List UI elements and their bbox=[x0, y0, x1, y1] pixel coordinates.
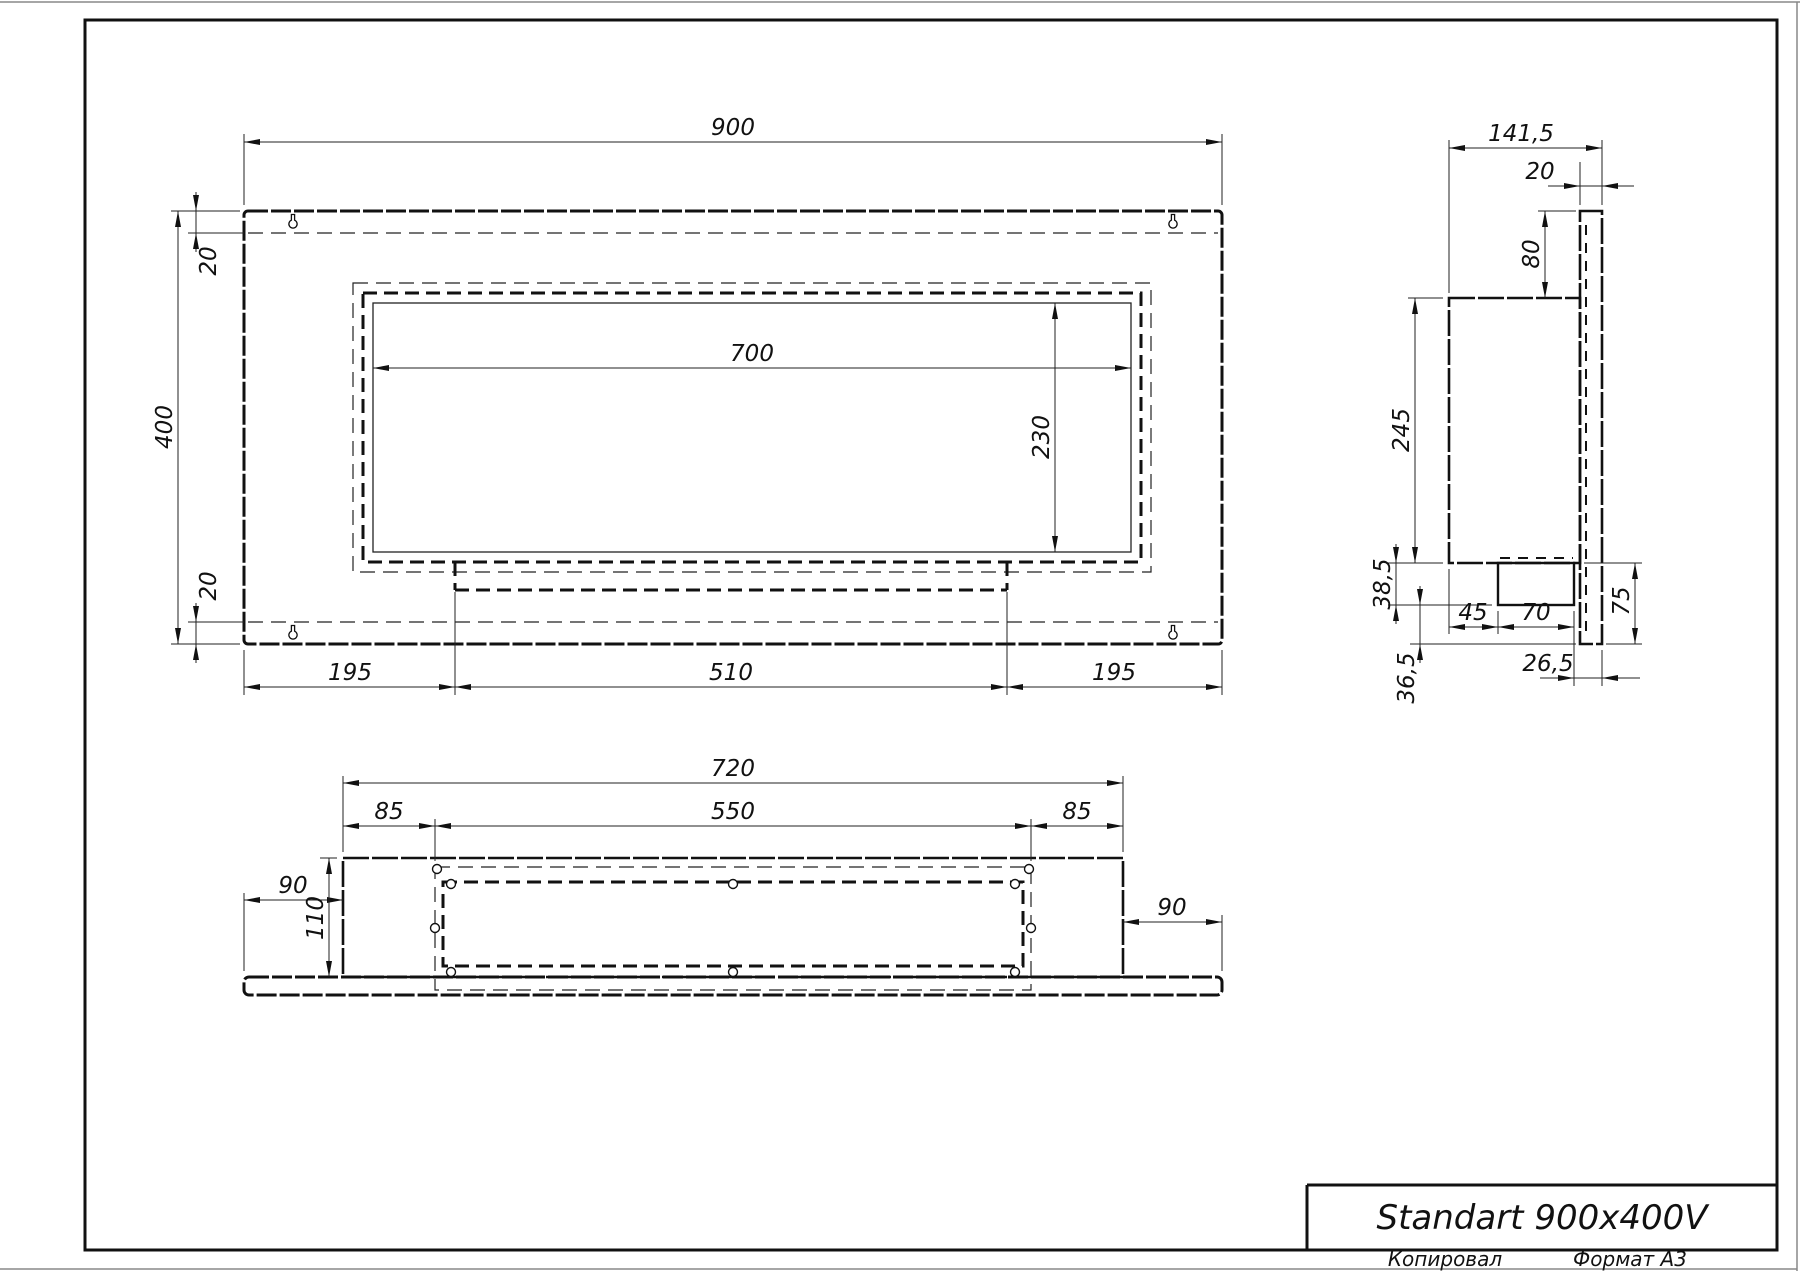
dim-label: 550 bbox=[711, 799, 755, 825]
drawing-title: Standart 900x400V bbox=[1376, 1198, 1710, 1238]
dim-label: 20 bbox=[196, 571, 222, 600]
dim-label: 85 bbox=[374, 799, 403, 825]
copied-label: Копировал bbox=[1388, 1247, 1502, 1271]
title-block: Standart 900x400V bbox=[1307, 1185, 1777, 1250]
bottom-view: 720 85 550 85 90 90 110 bbox=[244, 756, 1222, 995]
dim-label: 90 bbox=[278, 873, 307, 899]
bottom-body-outline bbox=[343, 858, 1123, 977]
side-view: 141,5 20 80 245 38,5 bbox=[1370, 121, 1642, 704]
dim-label: 80 bbox=[1519, 239, 1545, 268]
dim-label: 36,5 bbox=[1394, 652, 1420, 703]
dim-body-height: 245 bbox=[1388, 298, 1443, 563]
dim-label: 26,5 bbox=[1522, 651, 1573, 677]
dim-label: 20 bbox=[1525, 159, 1554, 185]
dim-label: 38,5 bbox=[1370, 558, 1396, 609]
dim-label: 195 bbox=[328, 660, 372, 686]
side-tray-outline bbox=[1498, 563, 1574, 605]
dim-label: 195 bbox=[1092, 660, 1136, 686]
drawing-canvas: 900 400 20 20 700 bbox=[0, 0, 1800, 1273]
burner-hidden-lines bbox=[455, 562, 1007, 590]
dim-front-bottom-offset: 20 bbox=[188, 571, 244, 663]
dim-top-flange: 80 bbox=[1519, 211, 1576, 298]
opening-mid-hidden bbox=[363, 293, 1141, 562]
dim-label: 20 bbox=[196, 246, 222, 275]
dim-panel-right-overhang: 90 bbox=[1123, 895, 1222, 971]
mounting-hole bbox=[1011, 880, 1020, 889]
mounting-hole bbox=[729, 880, 738, 889]
mounting-hole bbox=[1025, 865, 1034, 874]
dim-label: 700 bbox=[730, 341, 774, 367]
keyhole-icon bbox=[1169, 626, 1177, 640]
dim-tray-to-panel-edge: 26,5 bbox=[1522, 650, 1640, 686]
dim-label: 230 bbox=[1029, 415, 1055, 459]
dim-label: 141,5 bbox=[1488, 121, 1554, 147]
dim-bottom-slot-chain: 85 550 85 bbox=[343, 799, 1123, 861]
dim-panel-thickness: 20 bbox=[1525, 159, 1634, 205]
dim-label: 70 bbox=[1521, 600, 1550, 626]
keyhole-icon bbox=[1169, 215, 1177, 229]
dim-label: 45 bbox=[1458, 600, 1487, 626]
dim-bottom-body-depth: 110 bbox=[303, 858, 337, 977]
dim-front-width: 900 bbox=[244, 115, 1222, 205]
keyhole-icon bbox=[289, 626, 297, 640]
side-panel-outline bbox=[1580, 211, 1602, 644]
dim-label: 245 bbox=[1389, 408, 1415, 452]
mounting-hole bbox=[447, 968, 456, 977]
bottom-panel-strip bbox=[244, 977, 1222, 995]
mounting-hole bbox=[433, 865, 442, 874]
dim-bottom-flange: 75 bbox=[1584, 563, 1642, 644]
dim-opening-height: 230 bbox=[1029, 303, 1055, 552]
bottom-slot-inner-hidden bbox=[443, 882, 1023, 966]
dim-label: 85 bbox=[1062, 799, 1091, 825]
dim-label: 75 bbox=[1609, 586, 1635, 615]
front-view: 900 400 20 20 700 bbox=[152, 115, 1222, 695]
mounting-hole bbox=[431, 924, 440, 933]
dim-label: 720 bbox=[711, 756, 755, 782]
mounting-hole bbox=[447, 880, 456, 889]
dim-label: 110 bbox=[303, 896, 329, 940]
mounting-hole bbox=[1027, 924, 1036, 933]
dim-label: 400 bbox=[152, 405, 178, 449]
dim-front-top-offset: 20 bbox=[188, 192, 244, 276]
mounting-hole bbox=[1011, 968, 1020, 977]
sheet-borders bbox=[0, 2, 1800, 1271]
dim-opening-width: 700 bbox=[373, 341, 1131, 368]
side-body-outline bbox=[1449, 298, 1580, 563]
dim-label: 90 bbox=[1157, 895, 1186, 921]
mounting-holes bbox=[431, 865, 1036, 977]
front-panel-outline bbox=[244, 211, 1222, 644]
keyhole-icon bbox=[289, 215, 297, 229]
drawing-sheet: 900 400 20 20 700 bbox=[0, 0, 1800, 1273]
mounting-hole bbox=[729, 968, 738, 977]
format-label: Формат A3 bbox=[1573, 1247, 1687, 1271]
dim-label: 900 bbox=[711, 115, 755, 141]
dim-label: 510 bbox=[709, 660, 753, 686]
